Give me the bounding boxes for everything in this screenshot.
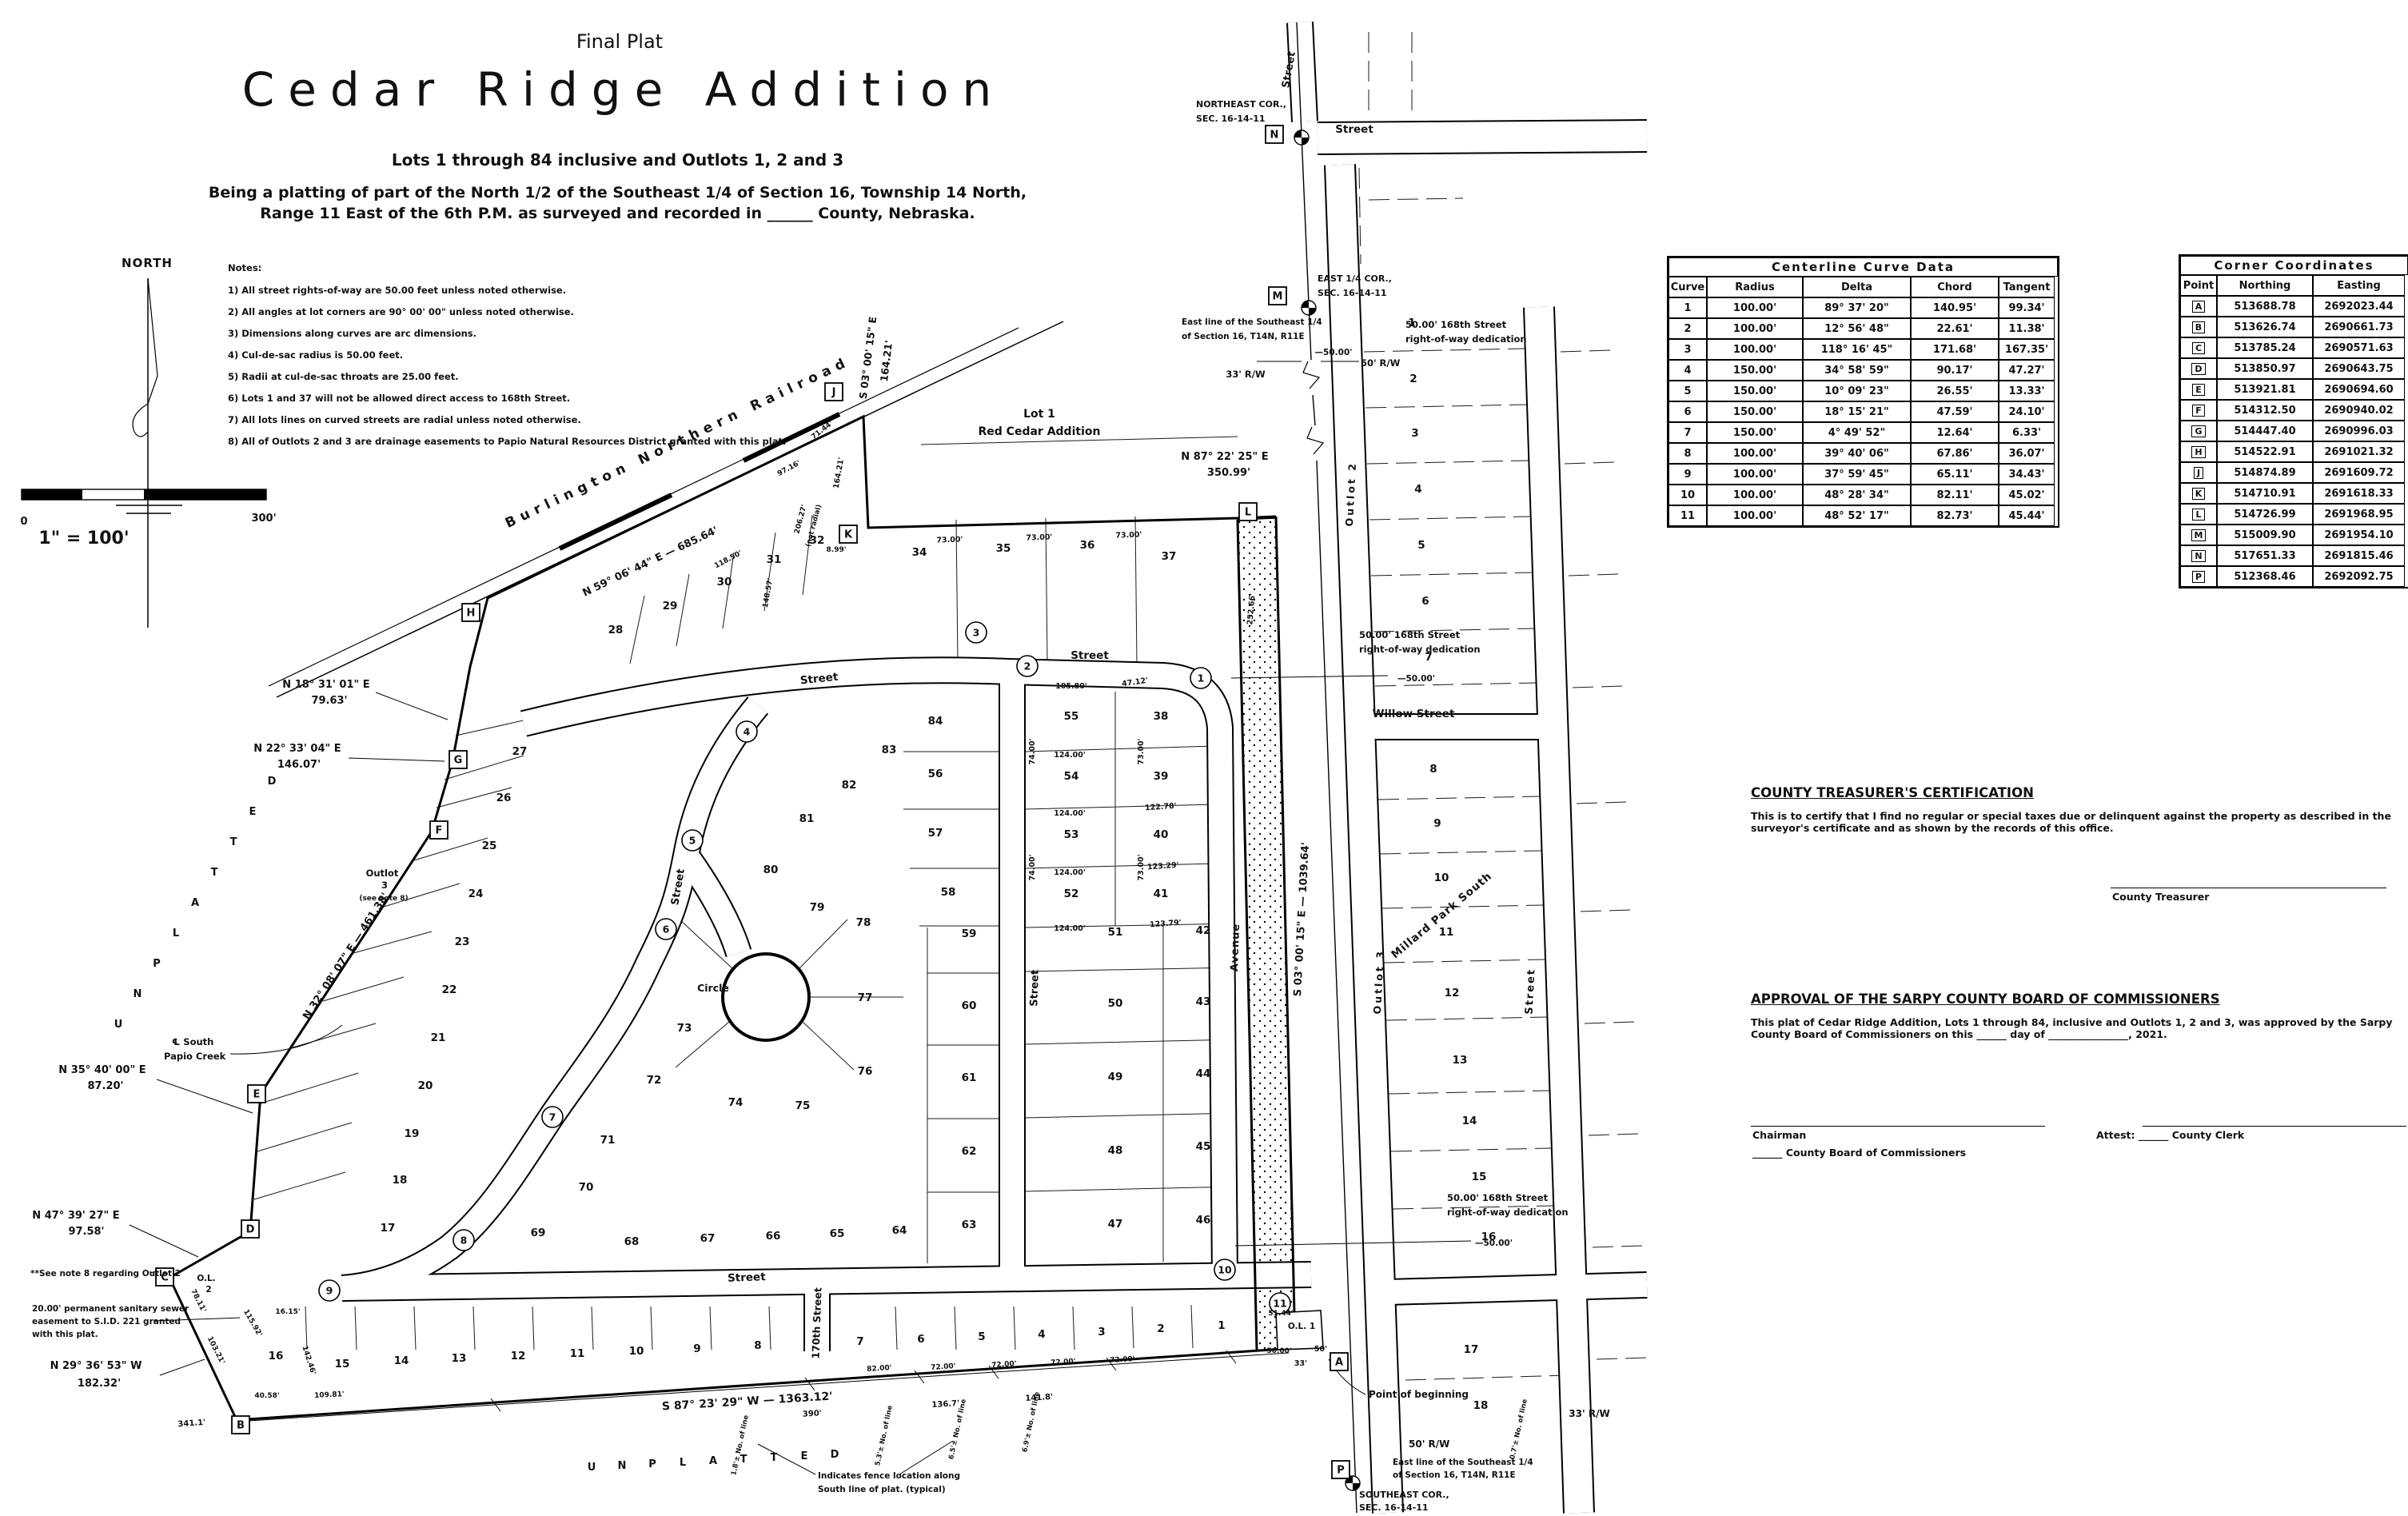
table-cell: J	[2180, 462, 2217, 483]
corner-point-marker: N	[1266, 126, 1283, 143]
table-cell: 513850.97	[2217, 358, 2313, 379]
map-label: 87.20'	[87, 1080, 123, 1092]
lot-number: 72	[647, 1074, 662, 1087]
corner-point-letter: M	[1273, 291, 1283, 303]
corner-point-letter: L	[1245, 507, 1251, 519]
table-cell: 2690940.02	[2313, 400, 2405, 421]
lot-number: 71	[600, 1134, 616, 1147]
map-label: 72.00'	[931, 1362, 956, 1372]
table-cell: 45.44'	[1999, 505, 2055, 526]
lot-number: 28	[608, 624, 624, 636]
map-label: 300'	[251, 513, 276, 525]
table-cell: 150.00'	[1707, 381, 1803, 401]
table-cell: F	[2180, 400, 2217, 421]
table-cell: 24.10'	[1999, 401, 2055, 422]
corner-point-marker: F	[430, 821, 448, 839]
table-cell: 22.61'	[1911, 318, 1999, 339]
map-label: D	[268, 776, 277, 788]
map-label: E	[801, 1450, 808, 1462]
corner-point-letter: D	[246, 1224, 255, 1236]
map-label: 6.9'± No. of line	[1021, 1391, 1042, 1454]
map-label: 50.00' 168th Street	[1447, 1192, 1549, 1203]
treasurer-certification: COUNTY TREASURER'S CERTIFICATION This is…	[1751, 785, 2406, 834]
table-column-header: Delta	[1803, 277, 1911, 297]
table-row: 2100.00'12° 56' 48"22.61'11.38'	[1668, 318, 2058, 339]
table-cell: 39° 40' 06"	[1803, 443, 1911, 464]
table-cell: 5	[1668, 381, 1707, 401]
lot-number: 5	[978, 1330, 985, 1343]
table-row: 10100.00'48° 28' 34"82.11'45.02'	[1668, 485, 2058, 505]
table-cell: E	[2180, 379, 2217, 400]
table-cell: 514522.91	[2217, 441, 2313, 462]
map-label: N	[134, 988, 142, 1000]
map-label: 82.00'	[867, 1364, 892, 1374]
map-label: NORTH	[122, 256, 173, 270]
treasurer-signature-label: County Treasurer	[2112, 891, 2209, 903]
map-label: 124.00'	[1054, 809, 1086, 818]
note-item: 6) Lots 1 and 37 will not be allowed dir…	[228, 393, 708, 404]
map-label: L	[680, 1457, 686, 1469]
attest-signature-line	[2143, 1126, 2406, 1127]
map-label: N 22° 33' 04" E	[253, 743, 341, 755]
map-label: of Section 16, T14N, R11E	[1393, 1470, 1516, 1480]
table-cell: 90.17'	[1911, 360, 1999, 381]
table-cell: 12° 56' 48"	[1803, 318, 1911, 339]
lot-number: 2	[1157, 1323, 1164, 1335]
lot-number: 53	[1064, 828, 1079, 841]
map-label: 0	[20, 516, 27, 528]
adjacent-lot-number: 11	[1439, 926, 1454, 939]
map-label: 123.79'	[1150, 919, 1182, 930]
table-cell: 7	[1668, 422, 1707, 443]
map-label: 105.80'	[1055, 682, 1087, 691]
corner-point-letter: A	[1335, 1357, 1343, 1369]
corner-point-marker: K	[839, 525, 857, 543]
treasurer-body-2: surveyor's certificate and as shown by t…	[1751, 822, 2406, 834]
curve-marker-number: 6	[663, 924, 670, 936]
table-cell: 513688.78	[2217, 296, 2313, 317]
table-cell: 34.43'	[1999, 464, 2055, 485]
table-cell: C	[2180, 337, 2217, 358]
map-label: 0.7'± No. of line	[1509, 1398, 1529, 1461]
lot-number: 43	[1196, 995, 1211, 1008]
table-cell: 100.00'	[1707, 485, 1803, 505]
lot-number: 7	[856, 1335, 863, 1348]
map-label: Indicates fence location along	[818, 1471, 960, 1481]
table-cell: 2690694.60	[2313, 379, 2405, 400]
lot-number: 50	[1108, 997, 1123, 1010]
corner-point-marker: J	[825, 383, 843, 401]
table-cell: 2691968.95	[2313, 504, 2405, 525]
map-label: 50.00' 168th Street	[1359, 629, 1461, 640]
table-cell: 4	[1668, 360, 1707, 381]
adjacent-lot-number: 12	[1445, 987, 1460, 999]
adjacent-lot-number: 9	[1433, 817, 1441, 830]
table-cell: 513626.74	[2217, 317, 2313, 337]
map-label: SEC. 16-14-11	[1318, 288, 1387, 298]
map-label: 33'	[1294, 1359, 1307, 1368]
table-cell: 65.11'	[1911, 464, 1999, 485]
map-label: P	[648, 1458, 656, 1470]
lot-number: 54	[1064, 770, 1079, 783]
table-cell: 171.68'	[1911, 339, 1999, 360]
table-cell: 513785.24	[2217, 337, 2313, 358]
table-row: 8100.00'39° 40' 06"67.86'36.07'	[1668, 443, 2058, 464]
table-row: F514312.502690940.02	[2180, 400, 2408, 421]
adjacent-lot-number: 17	[1464, 1343, 1479, 1356]
map-label: right-of-way dedication	[1405, 333, 1527, 345]
map-label: easement to S.I.D. 221 granted	[32, 1317, 181, 1326]
map-label: N 32° 08' 07" E — 461.38'	[301, 891, 392, 1022]
note-item: 7) All lots lines on curved streets are …	[228, 414, 708, 425]
map-label: T	[771, 1452, 778, 1464]
map-label: 148.57'	[762, 577, 775, 608]
map-label: Circle	[697, 982, 729, 994]
map-label: East line of the Southeast 1/4	[1182, 317, 1322, 327]
lot-number: 55	[1064, 710, 1079, 723]
table-row: A513688.782692023.44	[2180, 296, 2408, 317]
table-cell: 2691954.10	[2313, 525, 2405, 545]
table-row: 6150.00'18° 15' 21"47.59'24.10'	[1668, 401, 2058, 422]
map-label: 73.00'	[1137, 855, 1146, 881]
lot-number: 25	[482, 840, 497, 852]
map-label: 164.21'	[878, 340, 895, 383]
corner-point-letter: G	[454, 755, 463, 767]
plat-document-page: 1234567891011121314151617181920212223242…	[0, 0, 2408, 1516]
map-label: 390'	[803, 1409, 823, 1418]
table-row: P512368.462692092.75	[2180, 566, 2408, 587]
map-label: U	[114, 1019, 123, 1031]
lot-number: 6	[917, 1333, 924, 1346]
map-label: N 29° 36' 53" W	[50, 1360, 142, 1372]
table-cell: 2691021.32	[2313, 441, 2405, 462]
map-label: 142.46'	[300, 1345, 317, 1376]
lot-number: 60	[962, 999, 977, 1012]
lot-number: 52	[1064, 888, 1079, 900]
curve-marker-number: 10	[1218, 1264, 1232, 1276]
lot-number: 83	[882, 744, 897, 756]
table-column-header: Chord	[1911, 277, 1999, 297]
treasurer-signature-line	[2111, 888, 2386, 888]
table-cell: H	[2180, 441, 2217, 462]
lots-subtitle: Lots 1 through 84 inclusive and Outlots …	[0, 150, 1235, 170]
table-row: J514874.892691609.72	[2180, 462, 2408, 483]
map-label: of Section 16, T14N, R11E	[1182, 332, 1305, 341]
lot-number: 21	[431, 1031, 446, 1044]
table-cell: 100.00'	[1707, 443, 1803, 464]
map-label: 8.99'	[827, 546, 847, 554]
corner-point-letter: K	[844, 529, 853, 541]
lot-number: 56	[928, 768, 943, 780]
map-label: right-of-way dedication	[1447, 1207, 1569, 1218]
corner-point-letter: F	[436, 825, 443, 837]
table-cell: 2690996.03	[2313, 421, 2405, 441]
table-cell: 100.00'	[1707, 464, 1803, 485]
lot-number: 62	[962, 1145, 977, 1158]
map-label: 164.21'	[832, 457, 847, 489]
scale-bar	[22, 489, 266, 500]
map-label: Willow Street	[1373, 708, 1455, 720]
map-label: (see note 8)	[359, 895, 408, 903]
table-row: 1100.00'89° 37' 20"140.95'99.34'	[1668, 297, 2058, 318]
table-row: N517651.332691815.46	[2180, 545, 2408, 566]
curve-marker: 7	[542, 1107, 563, 1127]
table-cell: 82.73'	[1911, 505, 1999, 526]
lot-number: 58	[941, 886, 956, 899]
map-label: 118.50'	[713, 549, 744, 570]
table-cell: 513921.81	[2217, 379, 2313, 400]
lot-number: 79	[810, 901, 825, 914]
map-label: 124.00'	[1054, 751, 1086, 760]
note-item: 4) Cul-de-sac radius is 50.00 feet.	[228, 349, 708, 361]
map-label: N 35° 40' 00" E	[58, 1064, 146, 1076]
table-cell: 9	[1668, 464, 1707, 485]
adjacent-lot-number: 18	[1473, 1399, 1489, 1412]
curve-marker-number: 5	[689, 835, 696, 847]
lot-number: 67	[700, 1232, 716, 1245]
table-row: B513626.742690661.73	[2180, 317, 2408, 337]
lot-number: 12	[511, 1350, 526, 1362]
table-cell: 11	[1668, 505, 1707, 526]
map-label: 2	[205, 1285, 211, 1295]
map-label: Avenue	[1229, 924, 1242, 972]
curve-marker-number: 7	[549, 1111, 556, 1123]
table-cell: 10	[1668, 485, 1707, 505]
table-cell: 515009.90	[2217, 525, 2313, 545]
plat-map: 1234567891011121314151617181920212223242…	[0, 0, 2408, 1516]
corner-point-marker: M	[1269, 287, 1286, 305]
lot-number: 76	[858, 1065, 873, 1078]
table-row: 9100.00'37° 59' 45"65.11'34.43'	[1668, 464, 2058, 485]
map-label: right-of-way dedication	[1359, 644, 1481, 655]
table-cell: 8	[1668, 443, 1707, 464]
treasurer-body-1: This is to certify that I find no regula…	[1751, 810, 2406, 822]
map-label: 78.11'	[189, 1288, 207, 1314]
map-label: N 59° 06' 44" E — 685.64'	[581, 525, 720, 599]
table-cell: 514710.91	[2217, 483, 2313, 504]
map-label: 33' R/W	[1226, 369, 1266, 380]
lot-number: 9	[693, 1342, 700, 1355]
lot-number: 47	[1108, 1218, 1123, 1231]
table-cell: 2691618.33	[2313, 483, 2405, 504]
lot-number: 69	[531, 1227, 546, 1239]
adjacent-lot-number: 5	[1417, 539, 1425, 552]
map-label: 72.00'	[1110, 1355, 1135, 1365]
map-label: 79.63'	[311, 695, 347, 707]
map-label: L	[173, 928, 179, 940]
table-cell: G	[2180, 421, 2217, 441]
corner-point-letter: H	[467, 608, 476, 620]
lot-number: 23	[455, 936, 470, 948]
lot-number: 41	[1154, 888, 1169, 900]
street-surfaces	[342, 22, 1647, 1513]
centerline-curve-data-table: Centerline Curve Data CurveRadiusDeltaCh…	[1667, 256, 2059, 528]
table-cell: 37° 59' 45"	[1803, 464, 1911, 485]
map-label: Point of beginning	[1369, 1389, 1469, 1400]
lot-number: 73	[677, 1022, 692, 1035]
table-cell: 67.86'	[1911, 443, 1999, 464]
map-label: A	[191, 897, 199, 909]
map-label: 50' R/W	[1409, 1438, 1449, 1450]
map-label: 50'	[1314, 1345, 1327, 1354]
curve-marker: 1	[1190, 668, 1211, 688]
curve-marker-number: 2	[1024, 660, 1031, 672]
map-label: 74.00'	[1028, 739, 1037, 765]
map-label: 123.29'	[1147, 861, 1179, 872]
map-label: N 47° 39' 27" E	[32, 1210, 119, 1222]
map-label: 109.81'	[314, 1390, 345, 1400]
corner-point-marker: A	[1330, 1353, 1348, 1370]
lot-number: 49	[1108, 1071, 1123, 1083]
map-label: 136.7'	[931, 1399, 959, 1410]
table-cell: 36.07'	[1999, 443, 2055, 464]
lot-number: 11	[570, 1347, 585, 1360]
map-label: Street	[1028, 970, 1042, 1007]
lot-number: 81	[799, 812, 815, 825]
map-label: 3	[381, 880, 388, 891]
corner-point-letter: P	[1337, 1465, 1345, 1477]
map-label: O.L.	[197, 1274, 215, 1283]
adjacent-lot-number: 14	[1462, 1115, 1477, 1127]
curve-marker-number: 1	[1198, 672, 1205, 684]
lot-number: 70	[579, 1181, 594, 1194]
lot-number: 45	[1196, 1140, 1211, 1153]
map-label: 206.27'	[793, 504, 808, 535]
adjacent-lot-number: 10	[1434, 872, 1449, 884]
lot-number: 30	[717, 576, 732, 588]
table-cell: 18° 15' 21"	[1803, 401, 1911, 422]
table-column-header: Northing	[2217, 275, 2313, 296]
table-cell: 514447.40	[2217, 421, 2313, 441]
table-row: G514447.402690996.03	[2180, 421, 2408, 441]
map-label: P	[153, 958, 161, 970]
table-cell: 6.33'	[1999, 422, 2055, 443]
map-label: 122.78'	[1145, 802, 1177, 813]
table-cell: 2692092.75	[2313, 566, 2405, 587]
adjacent-lot-number: 15	[1472, 1171, 1487, 1183]
lot-number: 78	[856, 916, 871, 929]
map-label: A	[709, 1455, 717, 1467]
lot-number: 57	[928, 827, 943, 840]
table-cell: 11.38'	[1999, 318, 2055, 339]
map-label: 50.00' 168th Street	[1405, 319, 1507, 330]
lot-number: 36	[1080, 539, 1095, 552]
map-label: O.L. 1	[1288, 1322, 1315, 1331]
map-label: EAST 1/4 COR.,	[1318, 273, 1392, 284]
map-label: Red Cedar Addition	[979, 425, 1101, 438]
adjacent-lot-number: 4	[1414, 483, 1421, 496]
map-label: ℄ South	[172, 1036, 213, 1047]
map-label: —50.00'	[1397, 674, 1435, 684]
curve-marker: 5	[682, 830, 703, 851]
table-row: 7150.00'4° 49' 52"12.64'6.33'	[1668, 422, 2058, 443]
lot-number: 42	[1196, 924, 1211, 937]
map-label: 97.58'	[68, 1226, 104, 1238]
corner-point-letter: J	[831, 387, 836, 399]
table-column-header: Tangent	[1999, 277, 2055, 297]
lot-number: 37	[1162, 550, 1177, 563]
map-label: 51.44'	[1268, 1310, 1293, 1318]
map-label: —50.00'	[1475, 1239, 1513, 1248]
table-cell: M	[2180, 525, 2217, 545]
lot-number: 63	[962, 1219, 977, 1231]
lot-number: 51	[1108, 926, 1123, 939]
corner-coordinates-table: Corner Coordinates PointNorthingEasting …	[2179, 254, 2408, 588]
table-cell: L	[2180, 504, 2217, 525]
lot-number: 14	[394, 1354, 409, 1367]
table-cell: 6	[1668, 401, 1707, 422]
notes-heading: Notes:	[228, 262, 708, 273]
attest-label: Attest: ______ County Clerk	[2096, 1129, 2244, 1141]
table-cell: 512368.46	[2217, 566, 2313, 587]
lot-number: 39	[1154, 770, 1169, 783]
map-label: with this plat.	[32, 1330, 98, 1339]
adjacent-lot-lines	[1359, 32, 1646, 1380]
lot-number: 20	[418, 1079, 433, 1092]
curve-marker: 3	[966, 622, 987, 643]
lot-number: 80	[763, 864, 779, 876]
table-cell: 517651.33	[2217, 545, 2313, 566]
lot-number: 64	[892, 1224, 907, 1237]
lot-number: 19	[405, 1127, 420, 1140]
map-label: 72.00'	[991, 1360, 1017, 1370]
lot-number: 17	[381, 1222, 396, 1235]
table-cell: 47.59'	[1911, 401, 1999, 422]
table-cell: 100.00'	[1707, 339, 1803, 360]
map-label: **See note 8 regarding Outlot 2	[30, 1269, 181, 1279]
board-label: ______ County Board of Commissioners	[1752, 1147, 1966, 1159]
lot-number: 1	[1218, 1319, 1225, 1332]
table-cell: 140.95'	[1911, 297, 1999, 318]
corner-point-letter: E	[253, 1089, 261, 1101]
table-column-header: Radius	[1707, 277, 1803, 297]
lot-number: 75	[795, 1099, 811, 1112]
north-arrow	[116, 278, 182, 628]
table-cell: N	[2180, 545, 2217, 566]
map-label: Street	[728, 1271, 767, 1285]
curve-marker-number: 9	[326, 1285, 333, 1297]
note-item: 1) All street rights-of-way are 50.00 fe…	[228, 285, 708, 296]
note-item: 8) All of Outlots 2 and 3 are drainage e…	[228, 436, 708, 447]
chairman-label: Chairman	[1752, 1129, 1806, 1141]
adjacent-lot-number: 13	[1453, 1054, 1468, 1067]
lot-number: 34	[912, 546, 927, 559]
table-cell: 3	[1668, 339, 1707, 360]
curve-table-title: Centerline Curve Data	[1668, 257, 2058, 277]
table-cell: 514312.50	[2217, 400, 2313, 421]
map-label: N 18° 31' 01" E	[282, 679, 369, 691]
map-label: 1" = 100'	[38, 529, 129, 549]
adjacent-lot-number: 2	[1409, 373, 1417, 385]
map-label: Street	[1524, 968, 1538, 1015]
lot-number: 8	[754, 1339, 761, 1352]
lot-number: 10	[629, 1345, 644, 1358]
lot-number: 16	[269, 1350, 284, 1362]
curve-marker: 4	[736, 721, 757, 742]
lot-number: 46	[1196, 1214, 1211, 1227]
table-cell: 100.00'	[1707, 318, 1803, 339]
map-label: SOUTHEAST COR.,	[1359, 1490, 1449, 1500]
table-cell: 4° 49' 52"	[1803, 422, 1911, 443]
cul-de-sac	[724, 955, 807, 1039]
corner-point-marker: P	[1332, 1461, 1350, 1478]
lot-number: 74	[728, 1096, 744, 1109]
table-cell: 26.55'	[1911, 381, 1999, 401]
curve-marker: 6	[656, 919, 676, 940]
lot-number: 66	[766, 1230, 781, 1243]
lot-number: 29	[663, 600, 678, 612]
note-item: 5) Radii at cul-de-sac throats are 25.00…	[228, 371, 708, 382]
